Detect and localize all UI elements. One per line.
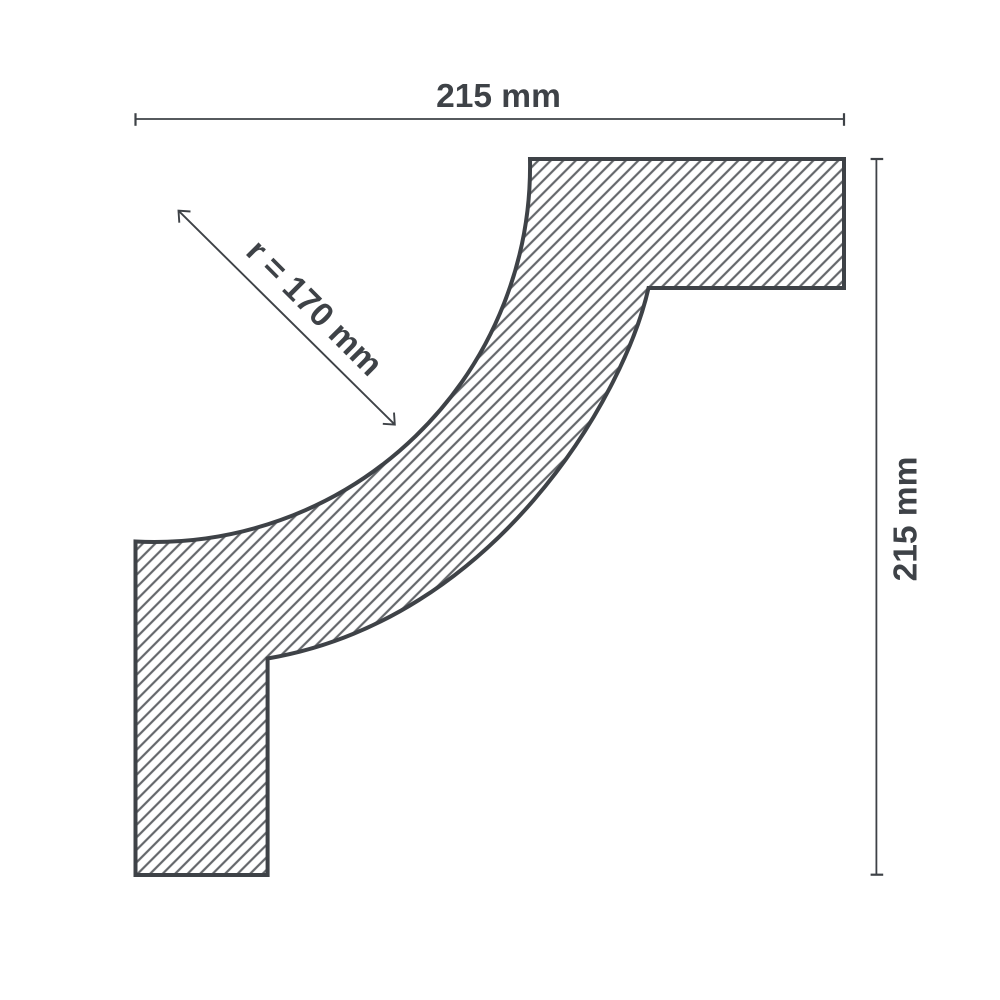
svg-text:r = 170 mm: r = 170 mm	[239, 233, 390, 384]
svg-text:215 mm: 215 mm	[888, 457, 925, 582]
svg-text:215 mm: 215 mm	[436, 78, 561, 115]
